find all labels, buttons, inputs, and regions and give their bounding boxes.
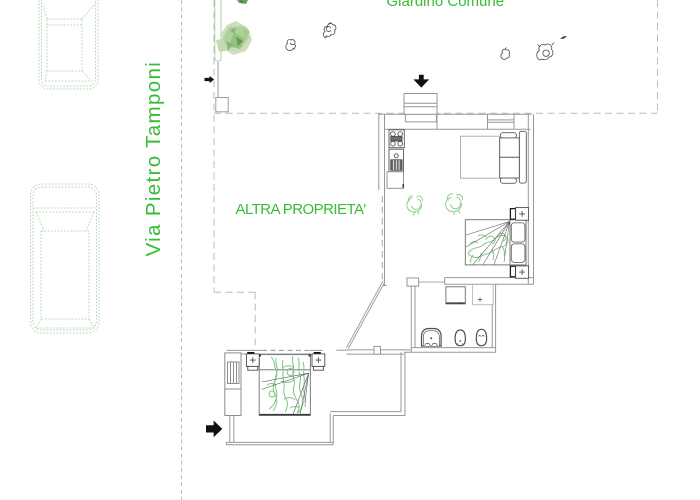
svg-text:Giardino Comune: Giardino Comune — [387, 0, 505, 10]
svg-text:Via Pietro Tamponi: Via Pietro Tamponi — [142, 61, 165, 257]
svg-text:ALTRA PROPRIETA': ALTRA PROPRIETA' — [236, 201, 367, 218]
